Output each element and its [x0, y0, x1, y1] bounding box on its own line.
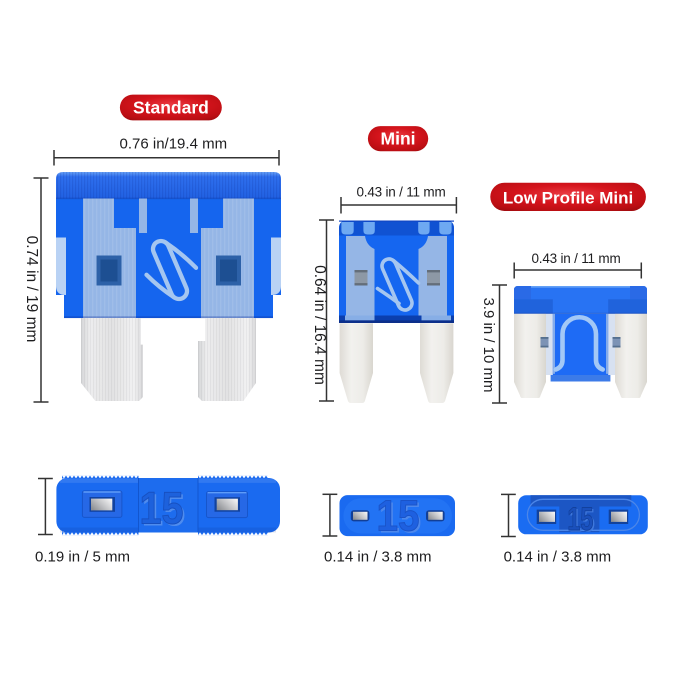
svg-text:0.64 in / 16.4 mm: 0.64 in / 16.4 mm: [311, 265, 328, 385]
svg-text:15: 15: [377, 492, 420, 541]
svg-text:15: 15: [140, 483, 184, 534]
svg-text:0.74 in / 19 mm: 0.74 in / 19 mm: [23, 236, 40, 343]
svg-text:Low Profile Mini: Low Profile Mini: [503, 189, 633, 208]
svg-text:15: 15: [567, 501, 593, 537]
svg-text:Mini: Mini: [381, 129, 416, 149]
svg-text:0.76 in/19.4 mm: 0.76 in/19.4 mm: [120, 135, 228, 152]
svg-text:3.9 in / 10 mm: 3.9 in / 10 mm: [480, 297, 497, 392]
svg-text:0.19 in / 5 mm: 0.19 in / 5 mm: [35, 549, 130, 566]
svg-text:0.43 in / 11 mm: 0.43 in / 11 mm: [531, 251, 620, 266]
svg-text:0.14 in / 3.8 mm: 0.14 in / 3.8 mm: [504, 549, 612, 566]
svg-text:0.43 in / 11 mm: 0.43 in / 11 mm: [356, 185, 445, 200]
svg-text:0.14 in / 3.8 mm: 0.14 in / 3.8 mm: [324, 549, 432, 566]
svg-text:Standard: Standard: [133, 98, 209, 118]
